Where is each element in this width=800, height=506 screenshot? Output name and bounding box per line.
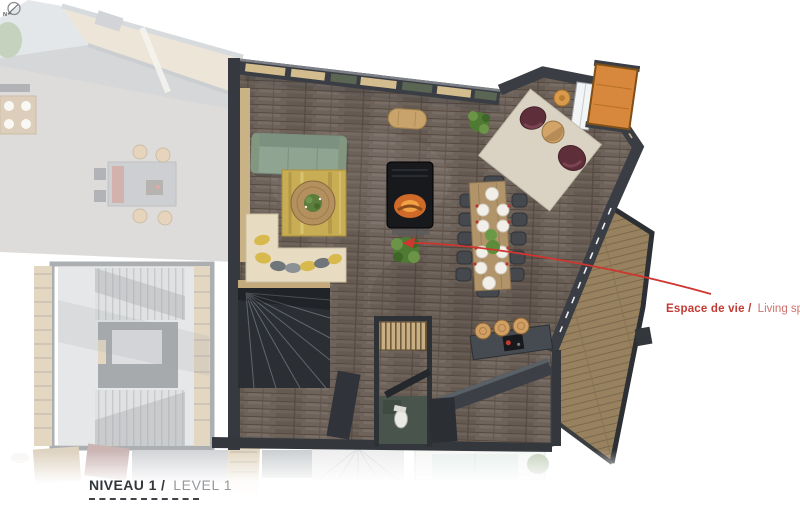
level-title: NIVEAU 1 / LEVEL 1 xyxy=(89,477,232,493)
main-unit xyxy=(212,58,652,463)
dining-set xyxy=(456,176,527,297)
living-space-label-en: Living space xyxy=(758,303,800,315)
living-space-label-fr: Espace de vie / xyxy=(666,303,751,315)
tall-cabinet xyxy=(428,397,457,443)
wc-toilet xyxy=(395,410,408,428)
seat-pillow xyxy=(285,263,301,273)
salad-bowl xyxy=(485,229,497,241)
wardrobe-slats xyxy=(379,322,427,350)
west-wall xyxy=(228,58,240,450)
north-indicator: N xyxy=(0,0,26,18)
railing-bracket xyxy=(635,327,653,346)
southeast-wall xyxy=(552,350,561,446)
orange-balcony xyxy=(585,60,640,134)
cooktop xyxy=(502,334,524,352)
indoor-plant-large xyxy=(391,237,420,263)
table-plant xyxy=(304,194,322,212)
floorplan-page: Espace de vie / Living space NIVEAU 1 / … xyxy=(0,0,800,506)
level-title-fr: NIVEAU 1 / xyxy=(89,477,165,493)
salad-bowl xyxy=(486,240,500,254)
round-pouf xyxy=(388,108,427,130)
floorplan-graphic xyxy=(0,0,800,506)
level-title-en: LEVEL 1 xyxy=(173,477,232,493)
suspended-fireplace xyxy=(387,162,433,235)
winder-stair xyxy=(238,280,330,388)
neighbor-stairwell xyxy=(34,264,212,448)
wood-slat-screen xyxy=(34,266,52,446)
north-needle xyxy=(8,5,18,15)
north-letter: N xyxy=(3,12,7,18)
living-space-label: Espace de vie / Living space xyxy=(666,303,800,315)
neighbor-unit-top-left xyxy=(0,0,250,262)
lounge-rug-group xyxy=(282,170,346,236)
level-title-underline xyxy=(89,498,199,500)
